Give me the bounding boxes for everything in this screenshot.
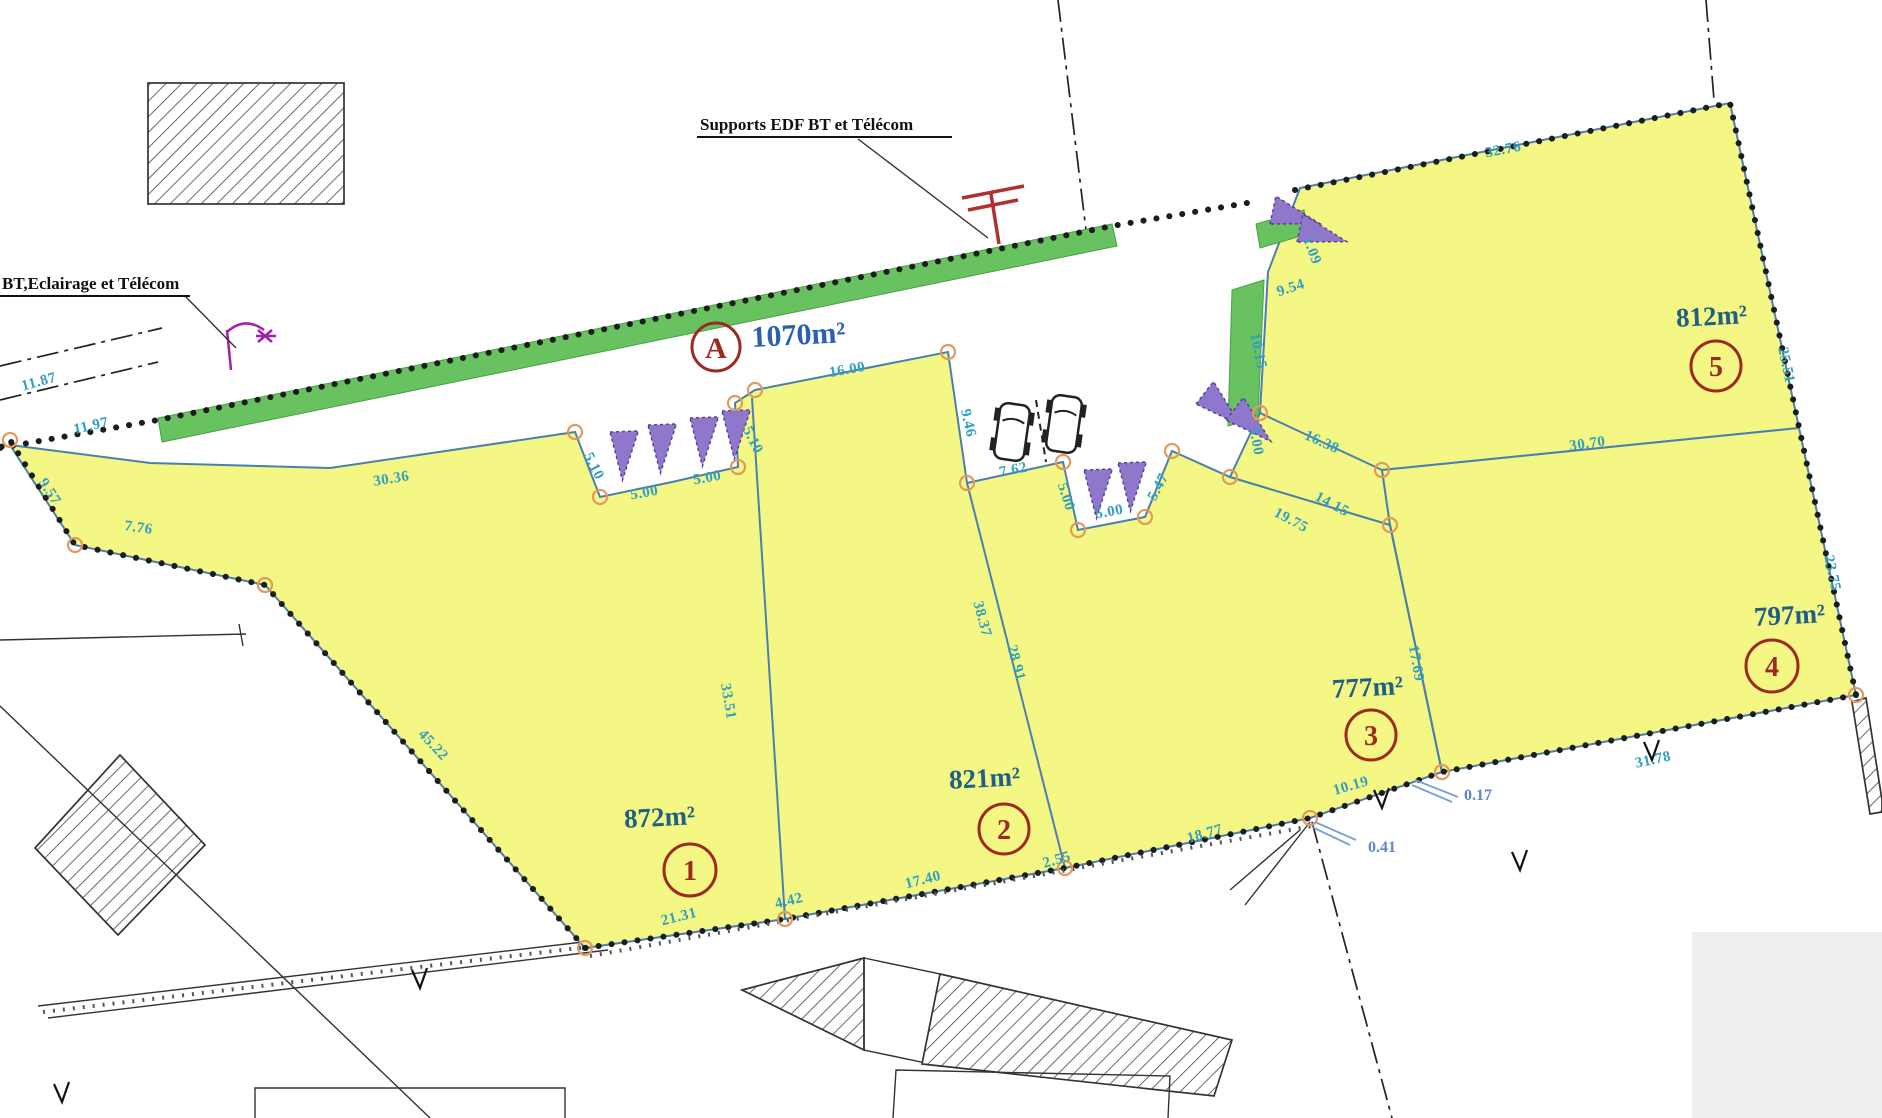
parcel-label-A: A 1070m²: [692, 316, 846, 371]
dim-label: 0.17: [1464, 787, 1492, 804]
parcel-block-1-2-3: [10, 352, 1442, 948]
hatched-building-bottom-triangle: [742, 958, 864, 1050]
context-line-bottom-left: [0, 706, 430, 1118]
parcel-id: 2: [997, 815, 1011, 846]
hatched-strip-right: [1852, 698, 1882, 814]
context-line-left: [0, 624, 246, 646]
hatched-building-top-left: [148, 83, 344, 204]
dim-label: 31.78: [1634, 748, 1673, 771]
hatched-building-diamond: [35, 755, 205, 935]
parcel-id: 3: [1364, 721, 1378, 752]
axis-dashdot-top-center: [1058, 0, 1086, 230]
axis-dashdot-topleft-1: [0, 328, 162, 366]
supports-label: Supports EDF BT et Télécom: [700, 115, 913, 134]
embankment-hachures: [43, 945, 604, 1012]
bt-label: BT,Eclairage et Télécom: [2, 274, 179, 293]
dim-label: 5.00: [1094, 502, 1125, 523]
supports-label-leader: [858, 139, 988, 238]
faint-background-block: [1692, 932, 1882, 1118]
parcel-id: 4: [1765, 652, 1779, 683]
parcel-area: 797m²: [1753, 598, 1826, 632]
bt-label-leader: [185, 296, 236, 348]
purple-triangle-icon: [684, 413, 719, 467]
parking-cars: [988, 393, 1087, 462]
cadastral-plan-canvas: Supports EDF BT et Télécom BT,Eclairage …: [0, 0, 1882, 1118]
car-icon: [1040, 393, 1087, 454]
purple-triangle-icon: [604, 427, 639, 481]
building-outline-bottom-left: [255, 1088, 565, 1118]
car-icon: [988, 401, 1035, 462]
parcel-id: A: [705, 332, 727, 365]
parcel-area: 1070m²: [751, 316, 847, 354]
hatched-building-bottom-right: [922, 974, 1232, 1096]
parcel-id: 5: [1709, 352, 1723, 383]
axis-dashdot-top-right: [1706, 0, 1714, 100]
edf-pole-symbol: [962, 186, 1024, 244]
axis-dashdot-bottom: [1312, 822, 1392, 1118]
parcel-area: 872m²: [623, 800, 696, 834]
dim-label: 0.41: [1368, 839, 1396, 856]
parcel-id: 1: [683, 856, 697, 887]
parcel-area: 812m²: [1675, 299, 1748, 333]
parcel-area: 777m²: [1331, 670, 1404, 704]
purple-triangle-icon: [642, 420, 677, 474]
plan-svg: Supports EDF BT et Télécom BT,Eclairage …: [0, 0, 1882, 1118]
parcel-area: 821m²: [948, 761, 1021, 795]
